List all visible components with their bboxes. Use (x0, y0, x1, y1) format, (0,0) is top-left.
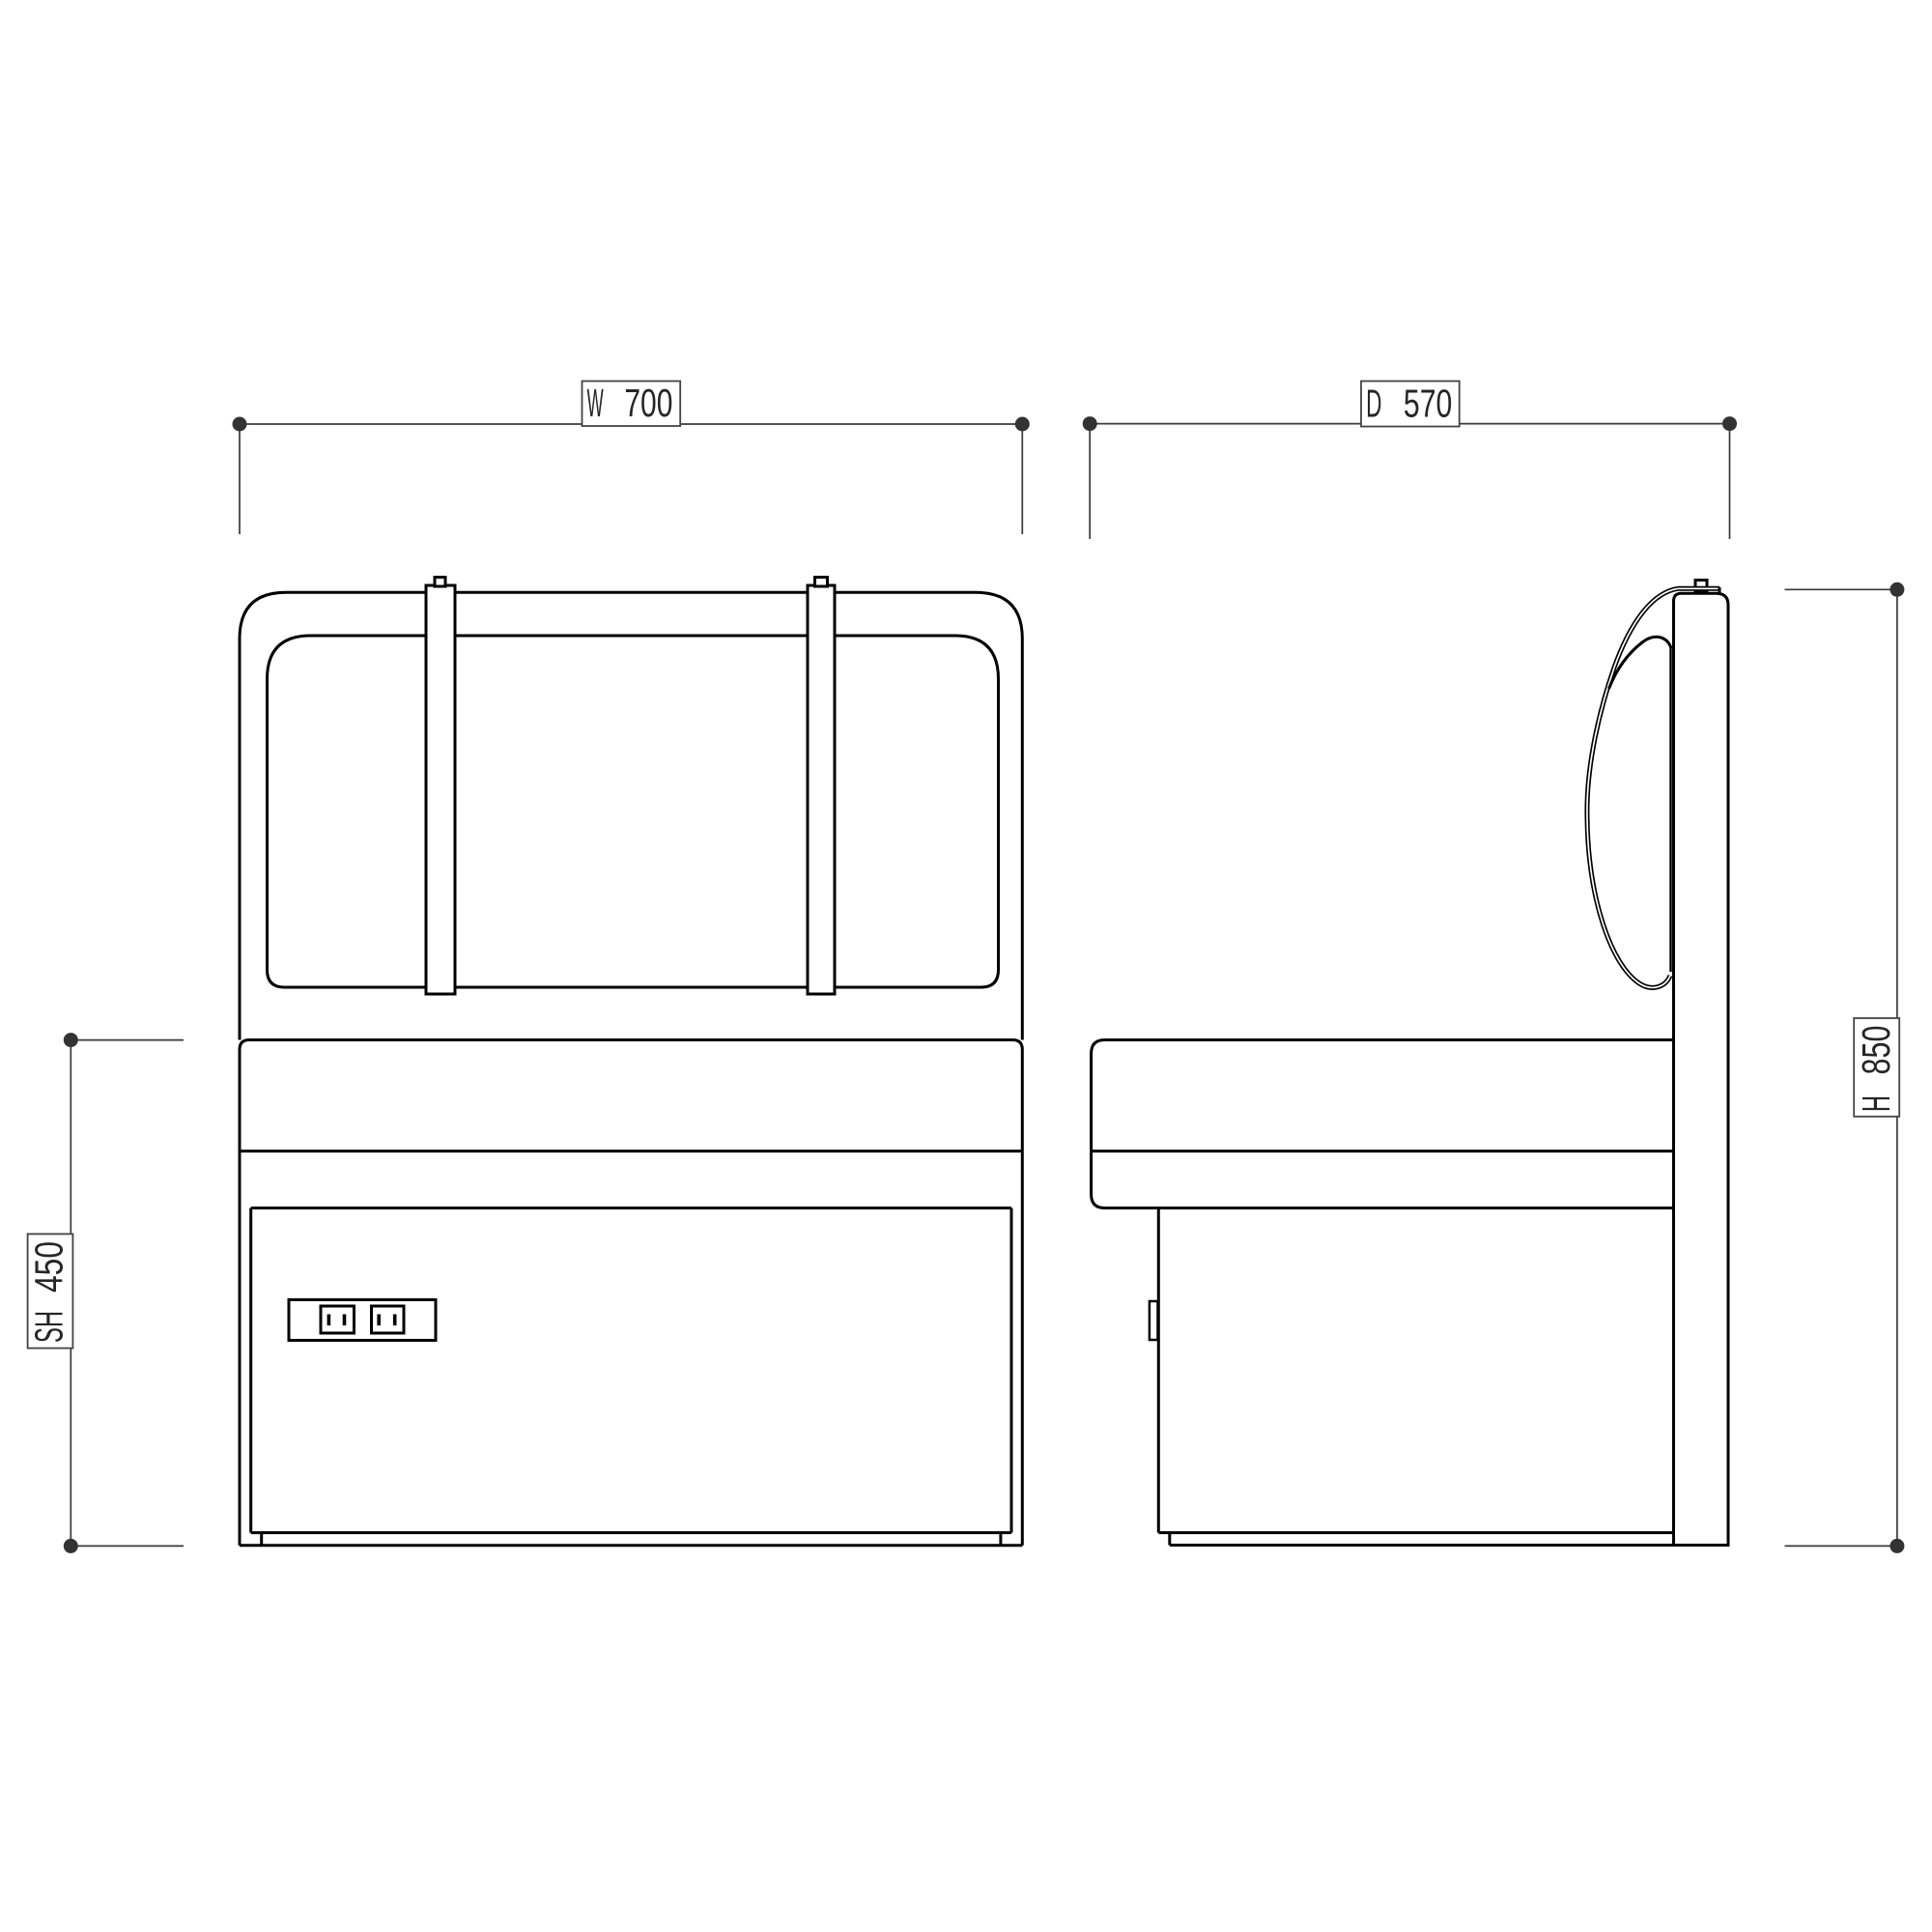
svg-text:D: D (1366, 382, 1381, 426)
svg-text:SH: SH (26, 1311, 71, 1343)
svg-text:450: 450 (26, 1241, 71, 1293)
svg-text:570: 570 (1404, 382, 1452, 426)
svg-text:W: W (587, 381, 604, 425)
svg-text:850: 850 (1854, 1026, 1898, 1075)
svg-text:H: H (1854, 1095, 1898, 1112)
svg-text:700: 700 (624, 381, 672, 425)
